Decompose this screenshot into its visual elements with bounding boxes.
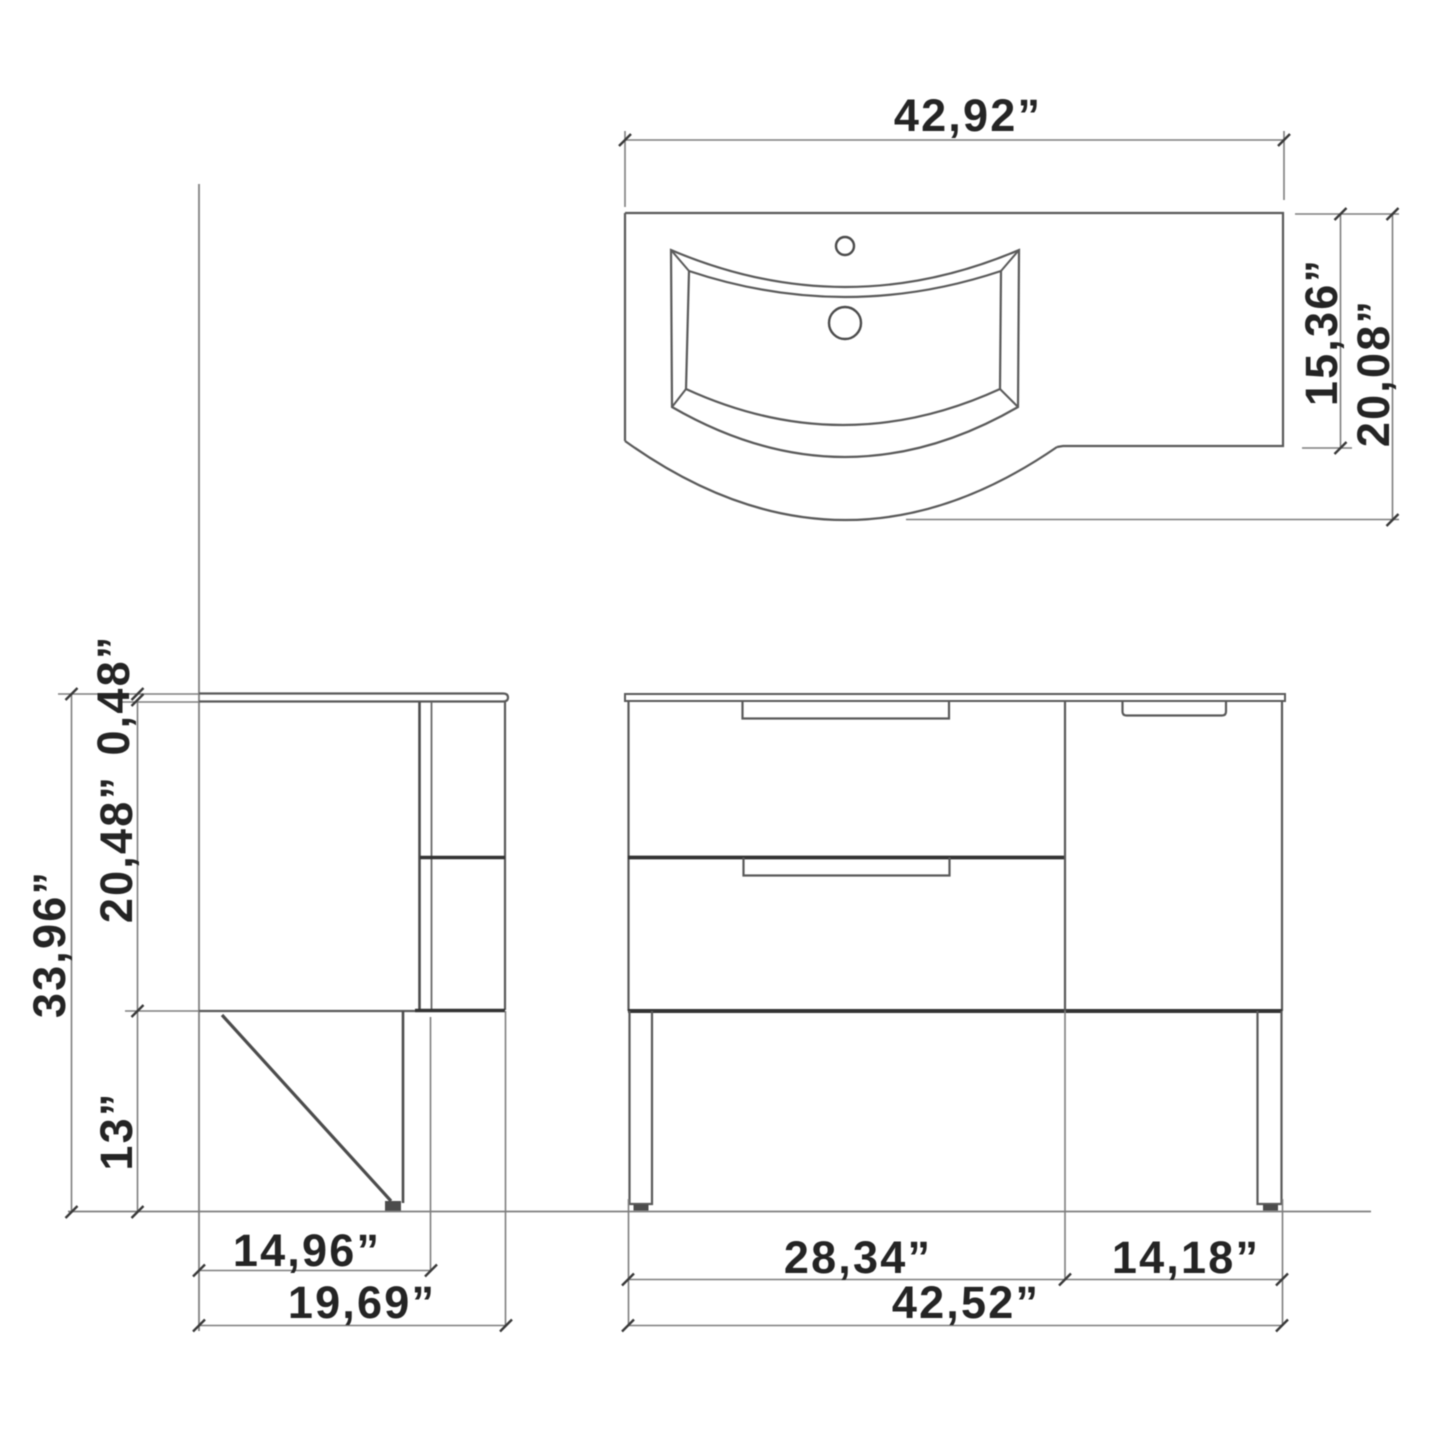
svg-text:14,18”: 14,18”	[1112, 1232, 1260, 1283]
svg-text:42,92”: 42,92”	[894, 90, 1042, 141]
svg-text:13”: 13”	[91, 1091, 142, 1170]
svg-text:0,48”: 0,48”	[88, 634, 139, 755]
svg-text:33,96”: 33,96”	[24, 870, 75, 1018]
svg-text:20,48”: 20,48”	[91, 775, 142, 923]
svg-text:14,96”: 14,96”	[233, 1225, 381, 1276]
svg-text:19,69”: 19,69”	[288, 1277, 436, 1328]
svg-text:20,08”: 20,08”	[1348, 299, 1399, 447]
svg-text:15,36”: 15,36”	[1296, 258, 1347, 406]
svg-text:42,52”: 42,52”	[892, 1277, 1040, 1328]
svg-text:28,34”: 28,34”	[784, 1232, 932, 1283]
